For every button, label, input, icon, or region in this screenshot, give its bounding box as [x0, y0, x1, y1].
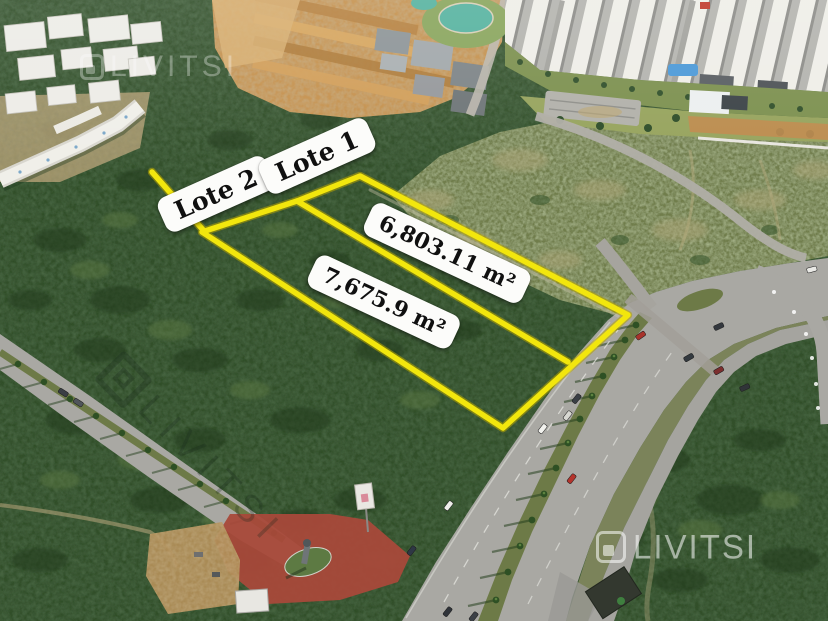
aerial-photo-stage: LIVITSI Lote 2 Lote 1 6,803.11 m² 7,675.… [0, 0, 828, 621]
